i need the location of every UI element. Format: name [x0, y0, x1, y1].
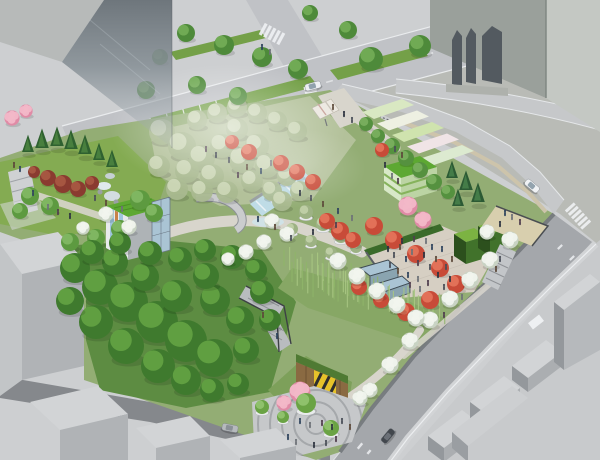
- pedestrian-figure: [335, 224, 337, 228]
- pedestrian-figure: [287, 436, 289, 440]
- pedestrian-figure: [57, 211, 59, 215]
- pedestrian-figure: [261, 46, 263, 50]
- pedestrian-figure: [435, 258, 437, 262]
- pedestrian-figure: [445, 266, 447, 270]
- pedestrian-figure: [394, 148, 396, 152]
- facade-niche: [482, 26, 502, 84]
- pedestrian-figure: [443, 314, 445, 318]
- pedestrian-figure: [331, 426, 333, 430]
- pedestrian-figure: [384, 164, 386, 168]
- pedestrian-figure: [511, 216, 513, 220]
- pedestrian-figure: [413, 238, 415, 242]
- pedestrian-figure: [397, 180, 399, 184]
- pedestrian-figure: [399, 246, 401, 250]
- pedestrian-figure: [499, 223, 501, 227]
- pedestrian-figure: [499, 258, 501, 262]
- pedestrian-figure: [313, 444, 315, 448]
- pedestrian-figure: [449, 278, 451, 282]
- pedestrian-figure: [425, 240, 427, 244]
- pedestrian-figure: [290, 237, 292, 241]
- pedestrian-figure: [13, 164, 15, 168]
- pedestrian-figure: [309, 424, 311, 428]
- pedestrian-figure: [121, 208, 123, 212]
- pedestrian-figure: [19, 168, 21, 172]
- pedestrian-figure: [407, 274, 409, 278]
- pedestrian-figure: [405, 258, 407, 262]
- pedestrian-figure: [335, 438, 337, 442]
- pedestrian-figure: [417, 278, 419, 282]
- pedestrian-figure: [349, 426, 351, 430]
- pedestrian-figure: [423, 254, 425, 258]
- pedestrian-figure: [387, 248, 389, 252]
- pedestrian-figure: [337, 210, 339, 214]
- pedestrian-figure: [262, 314, 264, 318]
- pedestrian-figure: [257, 218, 259, 222]
- pedestrian-figure: [451, 258, 453, 262]
- pedestrian-figure: [276, 335, 278, 339]
- pedestrian-figure: [94, 197, 96, 201]
- pedestrian-figure: [411, 251, 413, 255]
- pedestrian-figure: [427, 282, 429, 286]
- pedestrian-figure: [519, 221, 521, 225]
- pedestrian-figure: [269, 51, 271, 55]
- facade-niche: [452, 30, 462, 86]
- pedestrian-figure: [443, 286, 445, 290]
- pedestrian-figure: [409, 284, 411, 288]
- pedestrian-figure: [393, 254, 395, 258]
- pedestrian-figure: [461, 296, 463, 300]
- pedestrian-figure: [321, 422, 323, 426]
- pedestrian-figure: [419, 288, 421, 292]
- pedestrian-figure: [397, 270, 399, 274]
- pedestrian-figure: [417, 262, 419, 266]
- pedestrian-figure: [325, 442, 327, 446]
- pedestrian-figure: [105, 202, 107, 206]
- pedestrian-figure: [431, 246, 433, 250]
- pedestrian-figure: [401, 240, 403, 244]
- pedestrian-figure: [32, 192, 34, 196]
- pedestrian-figure: [351, 217, 353, 221]
- pedestrian-figure: [351, 119, 353, 123]
- pedestrian-figure: [504, 212, 506, 216]
- pedestrian-figure: [389, 264, 391, 268]
- facade-niche: [466, 28, 476, 84]
- render-haze: [226, 128, 366, 208]
- pedestrian-figure: [495, 268, 497, 272]
- pedestrian-figure: [274, 226, 276, 230]
- pedestrian-figure: [312, 231, 314, 235]
- pedestrian-figure: [401, 154, 403, 158]
- render-canvas: [0, 0, 600, 460]
- rendering-stage: [0, 0, 600, 460]
- pedestrian-figure: [441, 248, 443, 252]
- pedestrian-figure: [391, 175, 393, 179]
- pedestrian-figure: [341, 420, 343, 424]
- pedestrian-figure: [47, 206, 49, 210]
- pedestrian-figure: [69, 215, 71, 219]
- pedestrian-figure: [299, 420, 301, 424]
- pedestrian-figure: [295, 441, 297, 445]
- pedestrian-figure: [429, 266, 431, 270]
- pedestrian-figure: [437, 274, 439, 278]
